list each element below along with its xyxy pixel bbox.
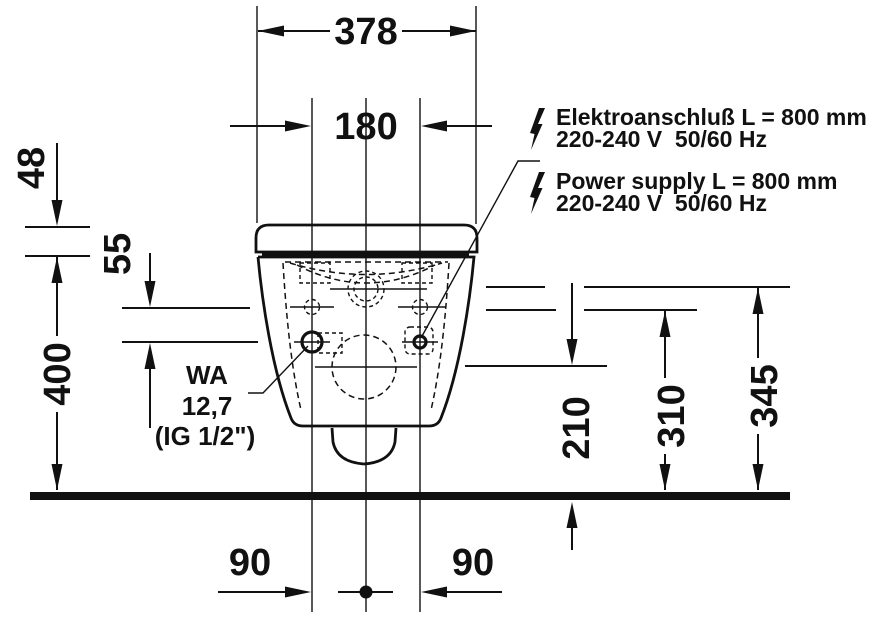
arrowhead-right (450, 26, 476, 37)
arrowhead-right (285, 587, 311, 598)
dimension-180: 180 (230, 106, 492, 148)
arrowhead-down (52, 464, 63, 490)
floor-line (30, 492, 790, 500)
dimension-378: 378 (258, 10, 476, 53)
dimension-48: 48 (11, 143, 90, 256)
arrowhead-up (753, 288, 764, 314)
dimension-value: 400 (37, 342, 79, 405)
dimension-value: 378 (334, 11, 397, 53)
dimension-90-left: 90 (218, 542, 311, 598)
hidden-body-right (431, 263, 449, 410)
hidden-body-left (283, 263, 301, 410)
dimension-value: 310 (651, 384, 693, 447)
dimension-400: 400 (37, 257, 79, 490)
dimension-value: 48 (11, 147, 53, 189)
arrowhead-up (567, 502, 578, 528)
technical-drawing-page: 378 180 48 400 55 (0, 0, 888, 617)
dimension-value: 90 (452, 542, 494, 584)
dimension-55: 55 (97, 233, 258, 428)
power-label-en-line2: 220-240 V 50/60 Hz (556, 190, 767, 216)
arrowhead-down (567, 339, 578, 365)
label-power-supply: Elektroanschluß L = 800 mm 220-240 V 50/… (421, 104, 867, 338)
bracket-detail-left (300, 263, 330, 283)
dimension-210: 210 (465, 283, 607, 550)
wa-size: 12,7 (182, 391, 233, 421)
wa-code: WA (186, 360, 228, 390)
toilet-installation-diagram: 378 180 48 400 55 (0, 0, 888, 617)
arrowhead-up (145, 343, 156, 369)
dimension-value: 345 (744, 364, 786, 427)
leader-line (421, 161, 540, 338)
arrowhead-down (52, 200, 63, 226)
dimension-value: 180 (334, 106, 397, 148)
dimension-value: 55 (97, 233, 139, 275)
lightning-bolt-icon (530, 108, 545, 150)
extension-lines (257, 6, 476, 612)
dimension-90-right: 90 (421, 542, 502, 598)
wa-thread: (IG 1/2") (155, 421, 255, 451)
leader-line (248, 346, 308, 393)
dimension-value: 90 (229, 542, 271, 584)
center-dot (360, 586, 373, 599)
dimension-345: 345 (486, 287, 790, 490)
arrowhead-down (660, 464, 671, 490)
dimension-value: 210 (556, 396, 598, 459)
power-connection-detail (405, 327, 433, 354)
arrowhead-up (660, 311, 671, 337)
arrowhead-up (52, 257, 63, 283)
center-reference-mark (338, 586, 393, 599)
lightning-bolt-icon (530, 172, 545, 214)
arrowhead-left (258, 26, 284, 37)
arrowhead-right (421, 121, 447, 132)
power-label-de-line2: 220-240 V 50/60 Hz (556, 126, 767, 152)
arrowhead-down (753, 464, 764, 490)
arrowhead-down (145, 281, 156, 307)
arrowhead-left (285, 121, 311, 132)
arrowhead-left (421, 587, 447, 598)
fixing-holes (290, 300, 446, 315)
outlet-pipe (332, 428, 396, 464)
